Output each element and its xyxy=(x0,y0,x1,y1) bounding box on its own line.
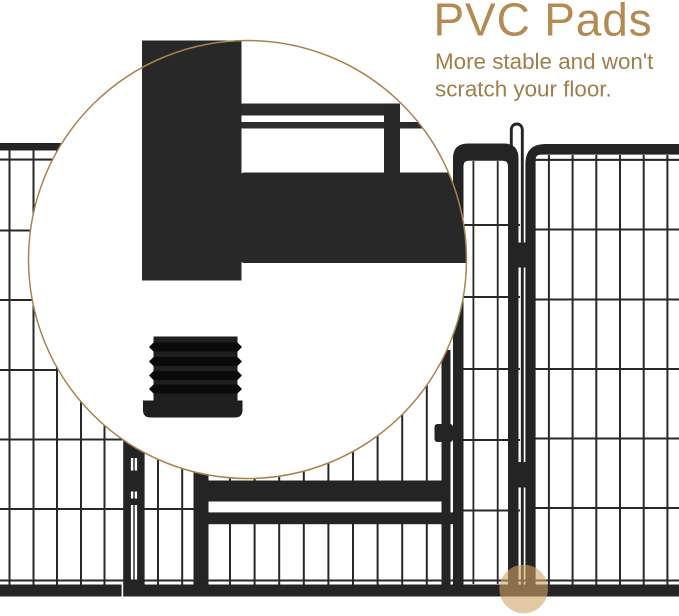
svg-text:scratch your floor.: scratch your floor. xyxy=(435,77,612,102)
svg-text:PVC Pads: PVC Pads xyxy=(434,0,653,46)
svg-text:More stable and won't: More stable and won't xyxy=(435,49,654,74)
